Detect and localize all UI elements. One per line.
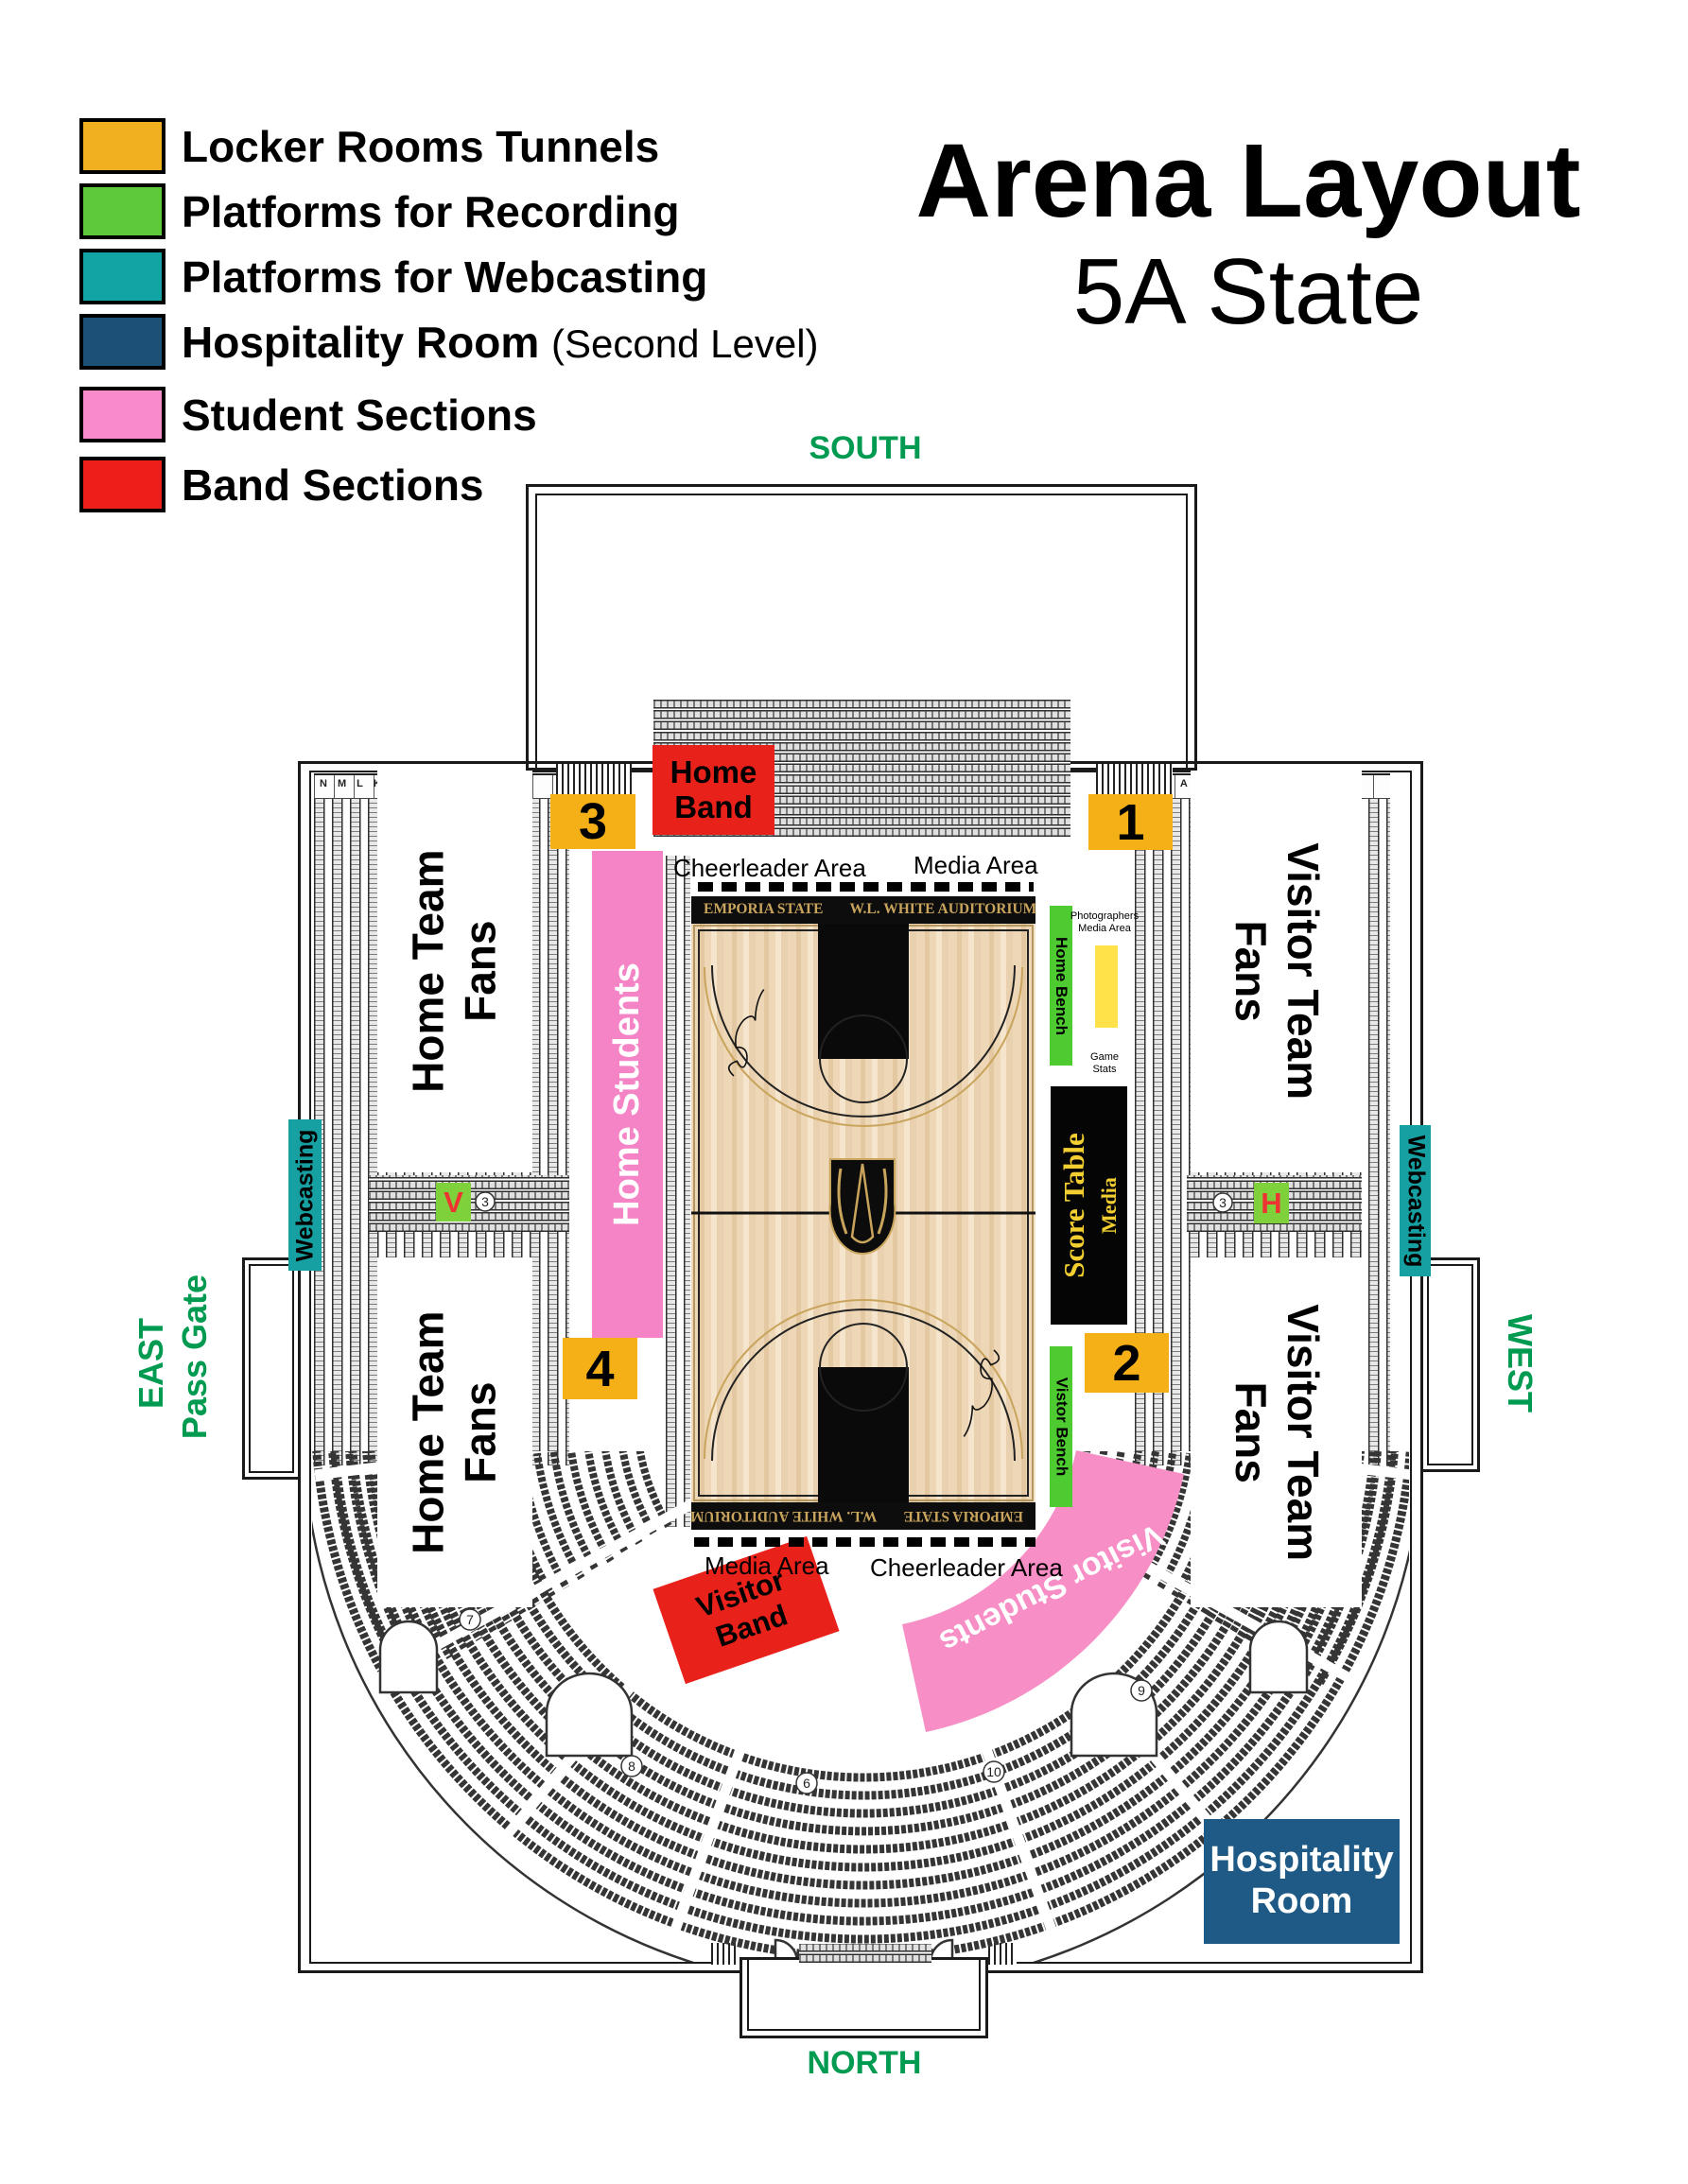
- svg-text:6: 6: [803, 1776, 810, 1791]
- svg-text:8: 8: [628, 1759, 635, 1774]
- svg-text:9: 9: [1138, 1683, 1145, 1698]
- svg-text:10: 10: [986, 1764, 1001, 1779]
- svg-text:3: 3: [481, 1194, 489, 1209]
- svg-text:3: 3: [1219, 1195, 1227, 1210]
- svg-text:7: 7: [466, 1612, 474, 1627]
